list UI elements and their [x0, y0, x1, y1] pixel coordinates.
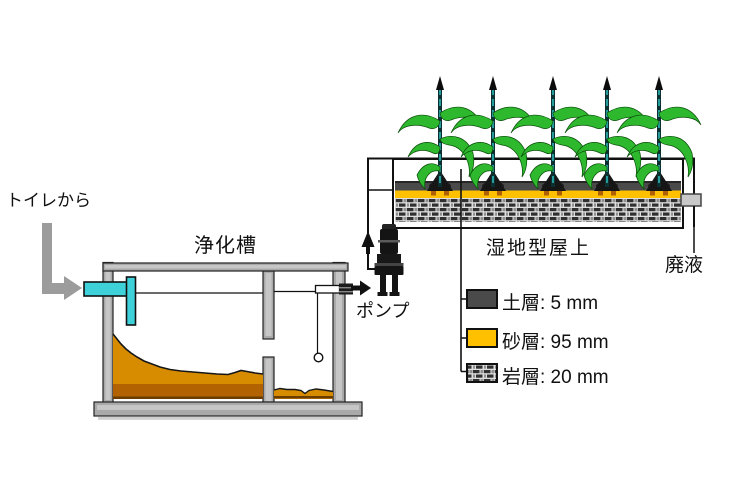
sand-layer [395, 191, 681, 199]
inlet-pipe [84, 282, 129, 296]
pump-icon [375, 224, 404, 296]
legend-item-rock: 岩層: 20 mm [502, 362, 609, 389]
root-speck [431, 191, 436, 196]
diagram-canvas: トイレから 浄化槽 ポンプ 湿地型屋上 廃液 土層: 5 mm 砂層: 95 m… [0, 0, 731, 500]
root-speck [598, 191, 603, 196]
top-bar-highlight [105, 265, 346, 269]
outlet-passage-stripe2 [339, 291, 353, 292]
rock-swatch [467, 364, 497, 382]
inlet-baffle [127, 277, 136, 325]
root-speck [663, 191, 668, 196]
rock-layer [395, 198, 681, 222]
float-switch [314, 353, 323, 362]
outlet-passage-stripe1 [339, 287, 353, 288]
root-speck [557, 191, 562, 196]
label-septic-tank: 浄化槽 [194, 236, 257, 257]
outlet-wall-passage [339, 284, 353, 295]
sludge-chamber2-floor-line [274, 396, 333, 399]
divider-highlight-upper [266, 273, 272, 336]
arrow-horizontal [42, 283, 66, 294]
septic-tank [84, 263, 362, 420]
arrow-vertical [42, 223, 52, 285]
sludge-chamber1-dark-band [113, 384, 263, 397]
soil-swatch [467, 290, 497, 308]
label-wetland-roof: 湿地型屋上 [486, 239, 591, 259]
sludge-chamber1-floor-line [113, 397, 263, 400]
root-speck [444, 191, 449, 196]
up-arrow-stem [366, 247, 370, 254]
base-highlight [97, 405, 359, 410]
system-diagram [0, 0, 731, 500]
label-from-toilet: トイレから [6, 192, 91, 210]
root-speck [544, 191, 549, 196]
root-speck [611, 191, 616, 196]
root-speck [497, 191, 502, 196]
legend-item-soil: 土層: 5 mm [502, 288, 598, 315]
base-shadow [98, 417, 358, 420]
label-pump: ポンプ [356, 302, 409, 321]
up-flow-arrow-icon [362, 231, 375, 247]
root-speck [650, 191, 655, 196]
divider-highlight-lower [266, 359, 272, 401]
to-pump-arrow-icon [360, 281, 371, 296]
to-pump-arrow-stem [351, 286, 361, 291]
sand-swatch [467, 329, 497, 347]
tank-outlet-pipe [316, 286, 340, 294]
arrow-head-icon [64, 276, 82, 300]
legend-item-sand: 砂層: 95 mm [502, 327, 609, 354]
effluent-pipe [681, 194, 701, 206]
toilet-inflow-arrow [42, 223, 82, 300]
pump-assembly [351, 224, 404, 296]
label-effluent: 廃液 [665, 256, 703, 276]
root-speck [484, 191, 489, 196]
